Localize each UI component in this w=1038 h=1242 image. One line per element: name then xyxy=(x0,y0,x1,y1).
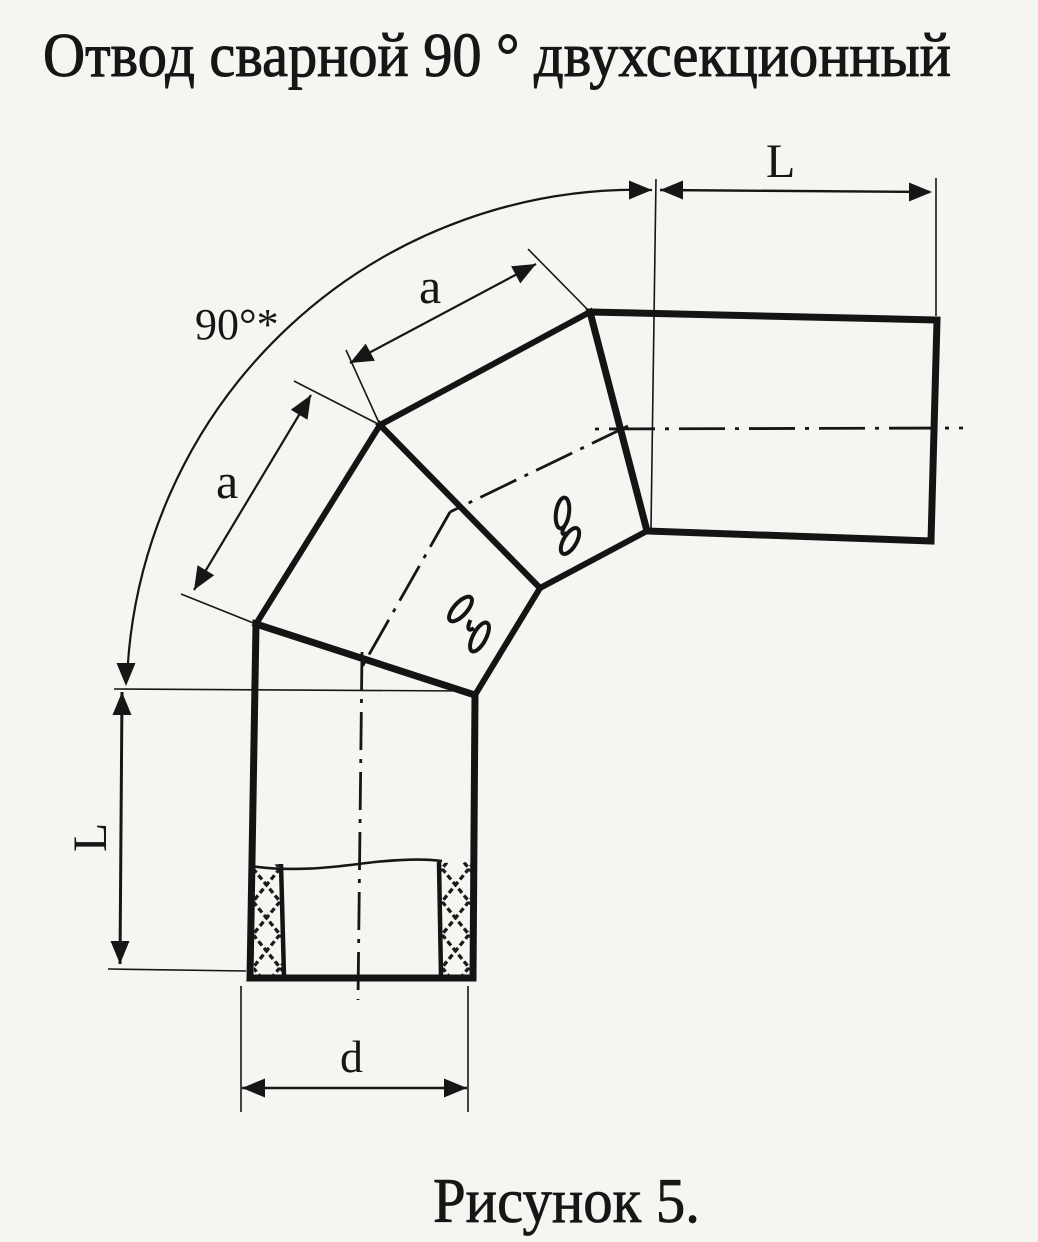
svg-text:a: a xyxy=(419,258,441,314)
svg-text:Отвод сварной 90 ° двухсекцион: Отвод сварной 90 ° двухсекционный xyxy=(43,22,951,90)
svg-text:a: a xyxy=(216,453,238,509)
svg-text:90°*: 90°* xyxy=(195,300,279,349)
svg-text:d: d xyxy=(340,1031,363,1082)
svg-text:L: L xyxy=(64,823,117,852)
svg-text:Рисунок 5.: Рисунок 5. xyxy=(433,1166,700,1236)
svg-text:L: L xyxy=(766,135,795,188)
